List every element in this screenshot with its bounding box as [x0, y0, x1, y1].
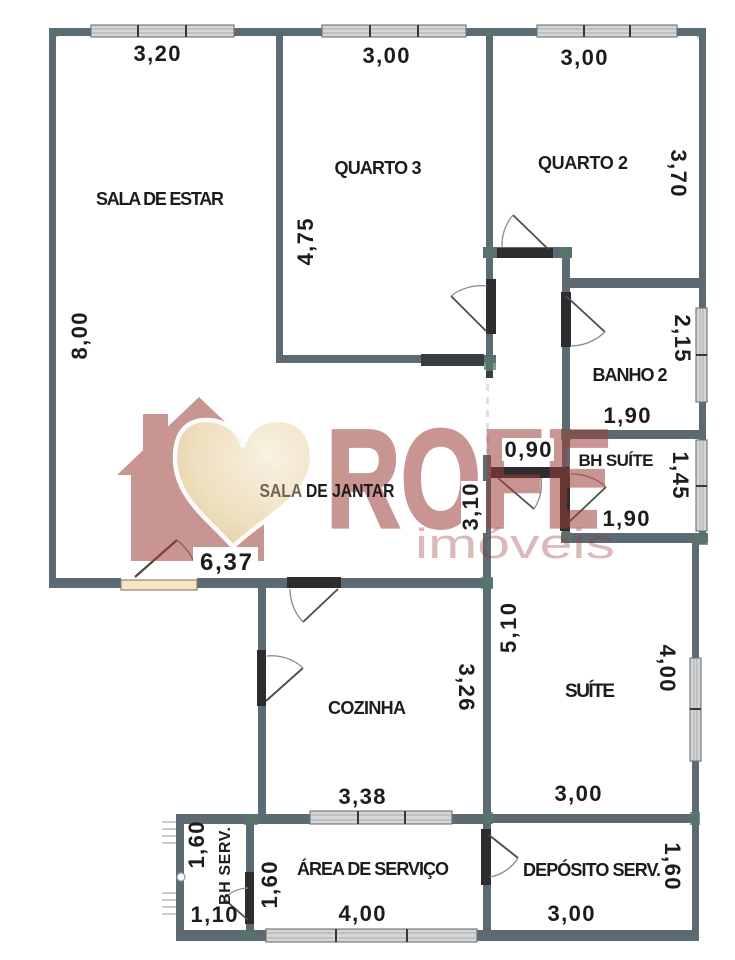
svg-text:BH SERV.: BH SERV.: [217, 827, 234, 905]
svg-text:3,38: 3,38: [339, 784, 386, 809]
svg-text:imóveis: imóveis: [415, 520, 615, 567]
svg-text:0,90: 0,90: [505, 437, 552, 462]
svg-text:SALA DE JANTAR: SALA DE JANTAR: [260, 481, 395, 501]
svg-text:1,45: 1,45: [668, 452, 693, 499]
svg-text:SALA DE ESTAR: SALA DE ESTAR: [96, 189, 224, 209]
svg-text:1,60: 1,60: [660, 843, 685, 890]
svg-text:4,00: 4,00: [655, 645, 680, 692]
svg-text:1,90: 1,90: [604, 403, 651, 428]
svg-text:SUÍTE: SUÍTE: [565, 680, 615, 702]
svg-text:3,70: 3,70: [666, 150, 691, 197]
svg-text:6,37: 6,37: [200, 549, 252, 576]
svg-text:QUARTO 2: QUARTO 2: [538, 153, 628, 173]
svg-text:3,20: 3,20: [134, 41, 181, 66]
svg-text:BANHO 2: BANHO 2: [593, 365, 668, 385]
svg-text:3,10: 3,10: [458, 484, 483, 531]
svg-text:3,00: 3,00: [548, 901, 595, 926]
svg-text:4,00: 4,00: [339, 901, 386, 926]
svg-text:DEPÓSITO SERV.: DEPÓSITO SERV.: [523, 859, 661, 880]
svg-text:4,75: 4,75: [293, 219, 318, 266]
svg-text:1,60: 1,60: [257, 862, 282, 909]
svg-text:3,00: 3,00: [363, 43, 410, 68]
svg-text:QUARTO 3: QUARTO 3: [335, 158, 422, 178]
svg-text:3,00: 3,00: [555, 781, 602, 806]
svg-text:BH SUÍTE: BH SUÍTE: [579, 451, 654, 470]
svg-text:3,00: 3,00: [561, 45, 608, 70]
svg-text:5,10: 5,10: [496, 603, 521, 653]
svg-text:1,90: 1,90: [603, 506, 650, 531]
svg-text:COZINHA: COZINHA: [328, 698, 406, 718]
svg-text:ÁREA DE SERVIÇO: ÁREA DE SERVIÇO: [297, 858, 449, 879]
svg-text:1,10: 1,10: [191, 902, 238, 927]
svg-text:2,15: 2,15: [670, 315, 695, 362]
svg-text:8,00: 8,00: [67, 313, 92, 360]
svg-text:3,26: 3,26: [454, 664, 479, 711]
svg-text:1,60: 1,60: [184, 822, 209, 869]
